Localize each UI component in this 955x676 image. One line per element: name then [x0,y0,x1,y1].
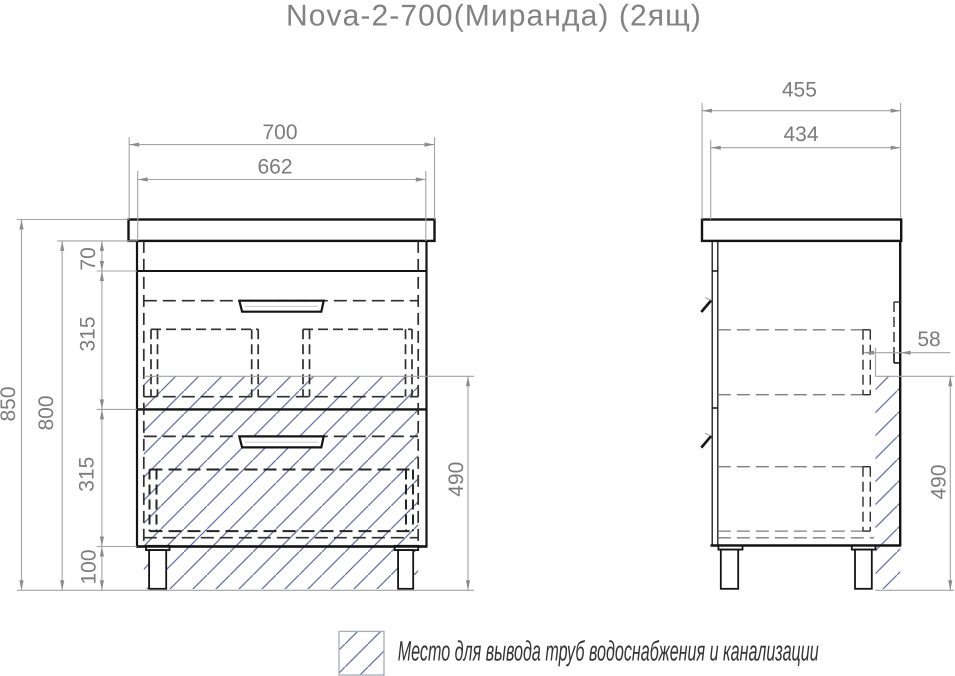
svg-text:662: 662 [257,156,292,179]
svg-text:850: 850 [0,386,20,421]
svg-text:Nova-2-700(Миранда) (2ящ): Nova-2-700(Миранда) (2ящ) [286,0,702,33]
svg-text:Место для вывода труб водоснаб: Место для вывода труб водоснабжения и ка… [398,636,819,667]
svg-text:800: 800 [35,395,58,430]
svg-text:490: 490 [928,464,951,499]
svg-text:315: 315 [76,457,99,492]
svg-text:455: 455 [782,78,817,101]
svg-text:58: 58 [917,328,940,351]
svg-text:434: 434 [783,123,818,146]
svg-text:100: 100 [78,549,101,584]
svg-text:70: 70 [77,247,100,270]
svg-text:490: 490 [445,462,468,497]
svg-text:700: 700 [262,121,297,144]
svg-text:315: 315 [76,316,99,351]
